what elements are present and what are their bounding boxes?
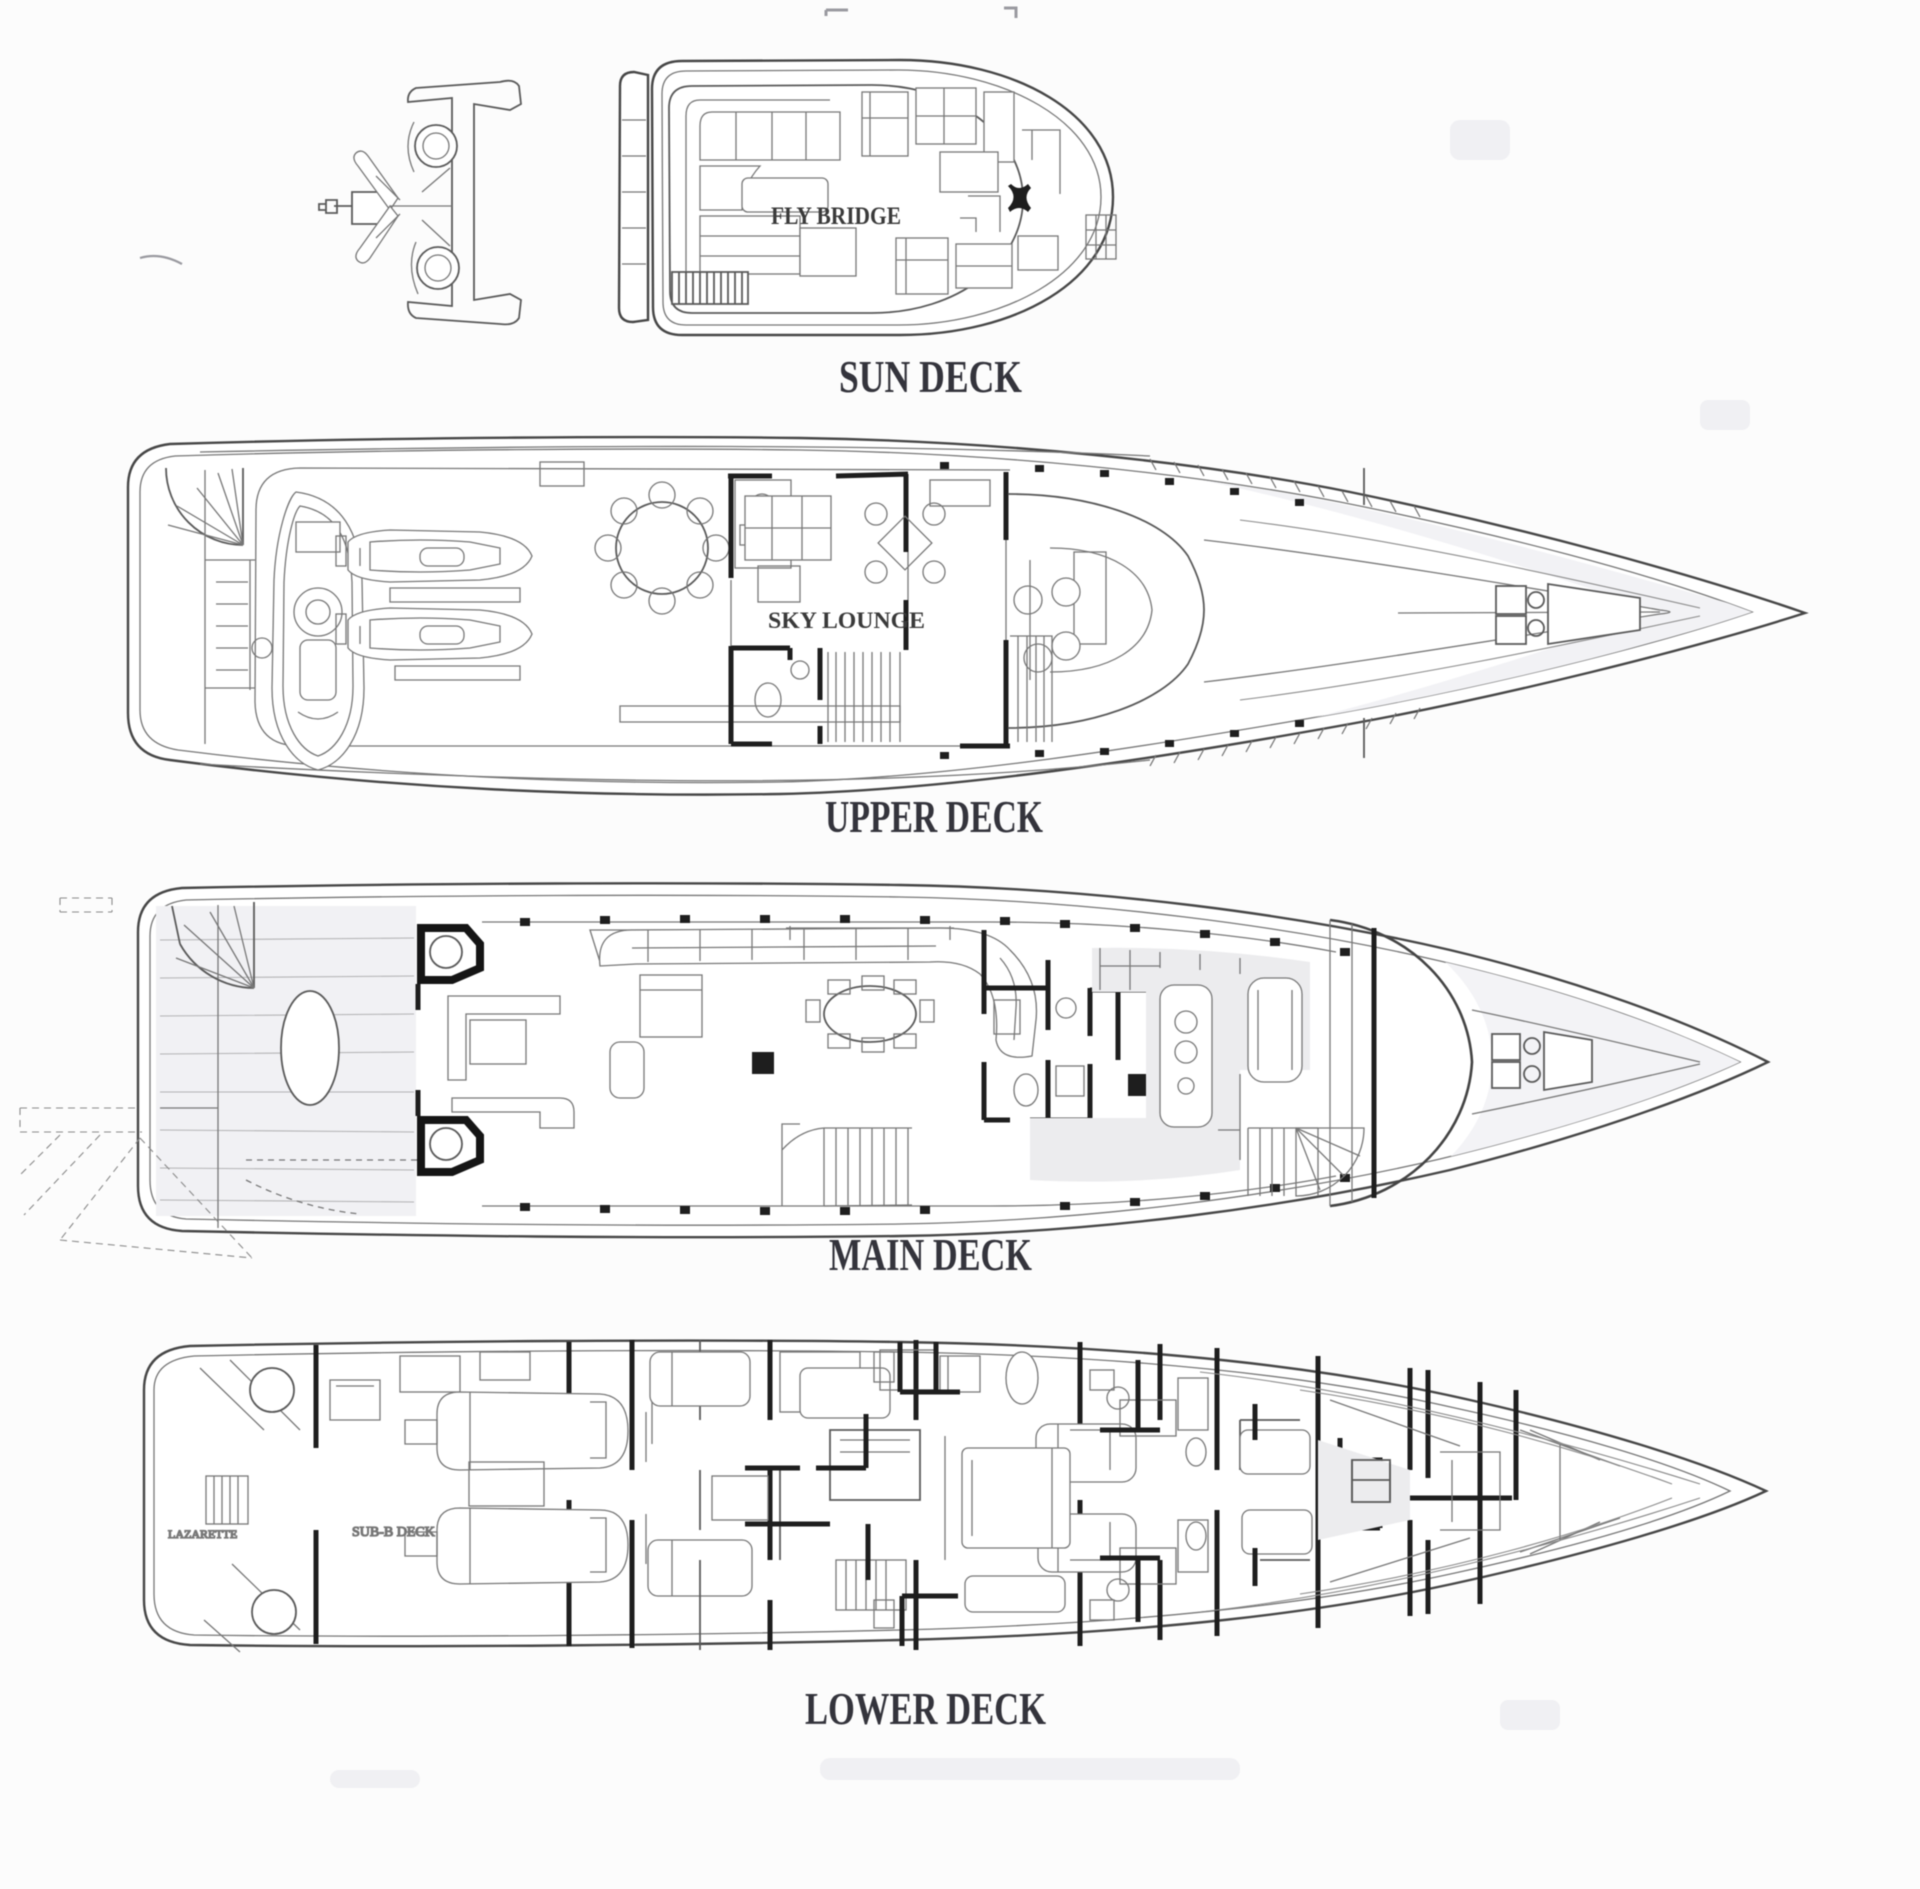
svg-text:FLY BRIDGE: FLY BRIDGE	[771, 203, 901, 230]
svg-text:MAIN DECK: MAIN DECK	[829, 1229, 1032, 1280]
svg-text:UPPER DECK: UPPER DECK	[825, 791, 1043, 842]
svg-text:LOWER DECK: LOWER DECK	[805, 1683, 1046, 1734]
svg-text:SKY LOUNGE: SKY LOUNGE	[768, 608, 925, 633]
svg-text:SUN DECK: SUN DECK	[839, 351, 1022, 402]
svg-text:LAZARETTE: LAZARETTE	[168, 1527, 237, 1541]
